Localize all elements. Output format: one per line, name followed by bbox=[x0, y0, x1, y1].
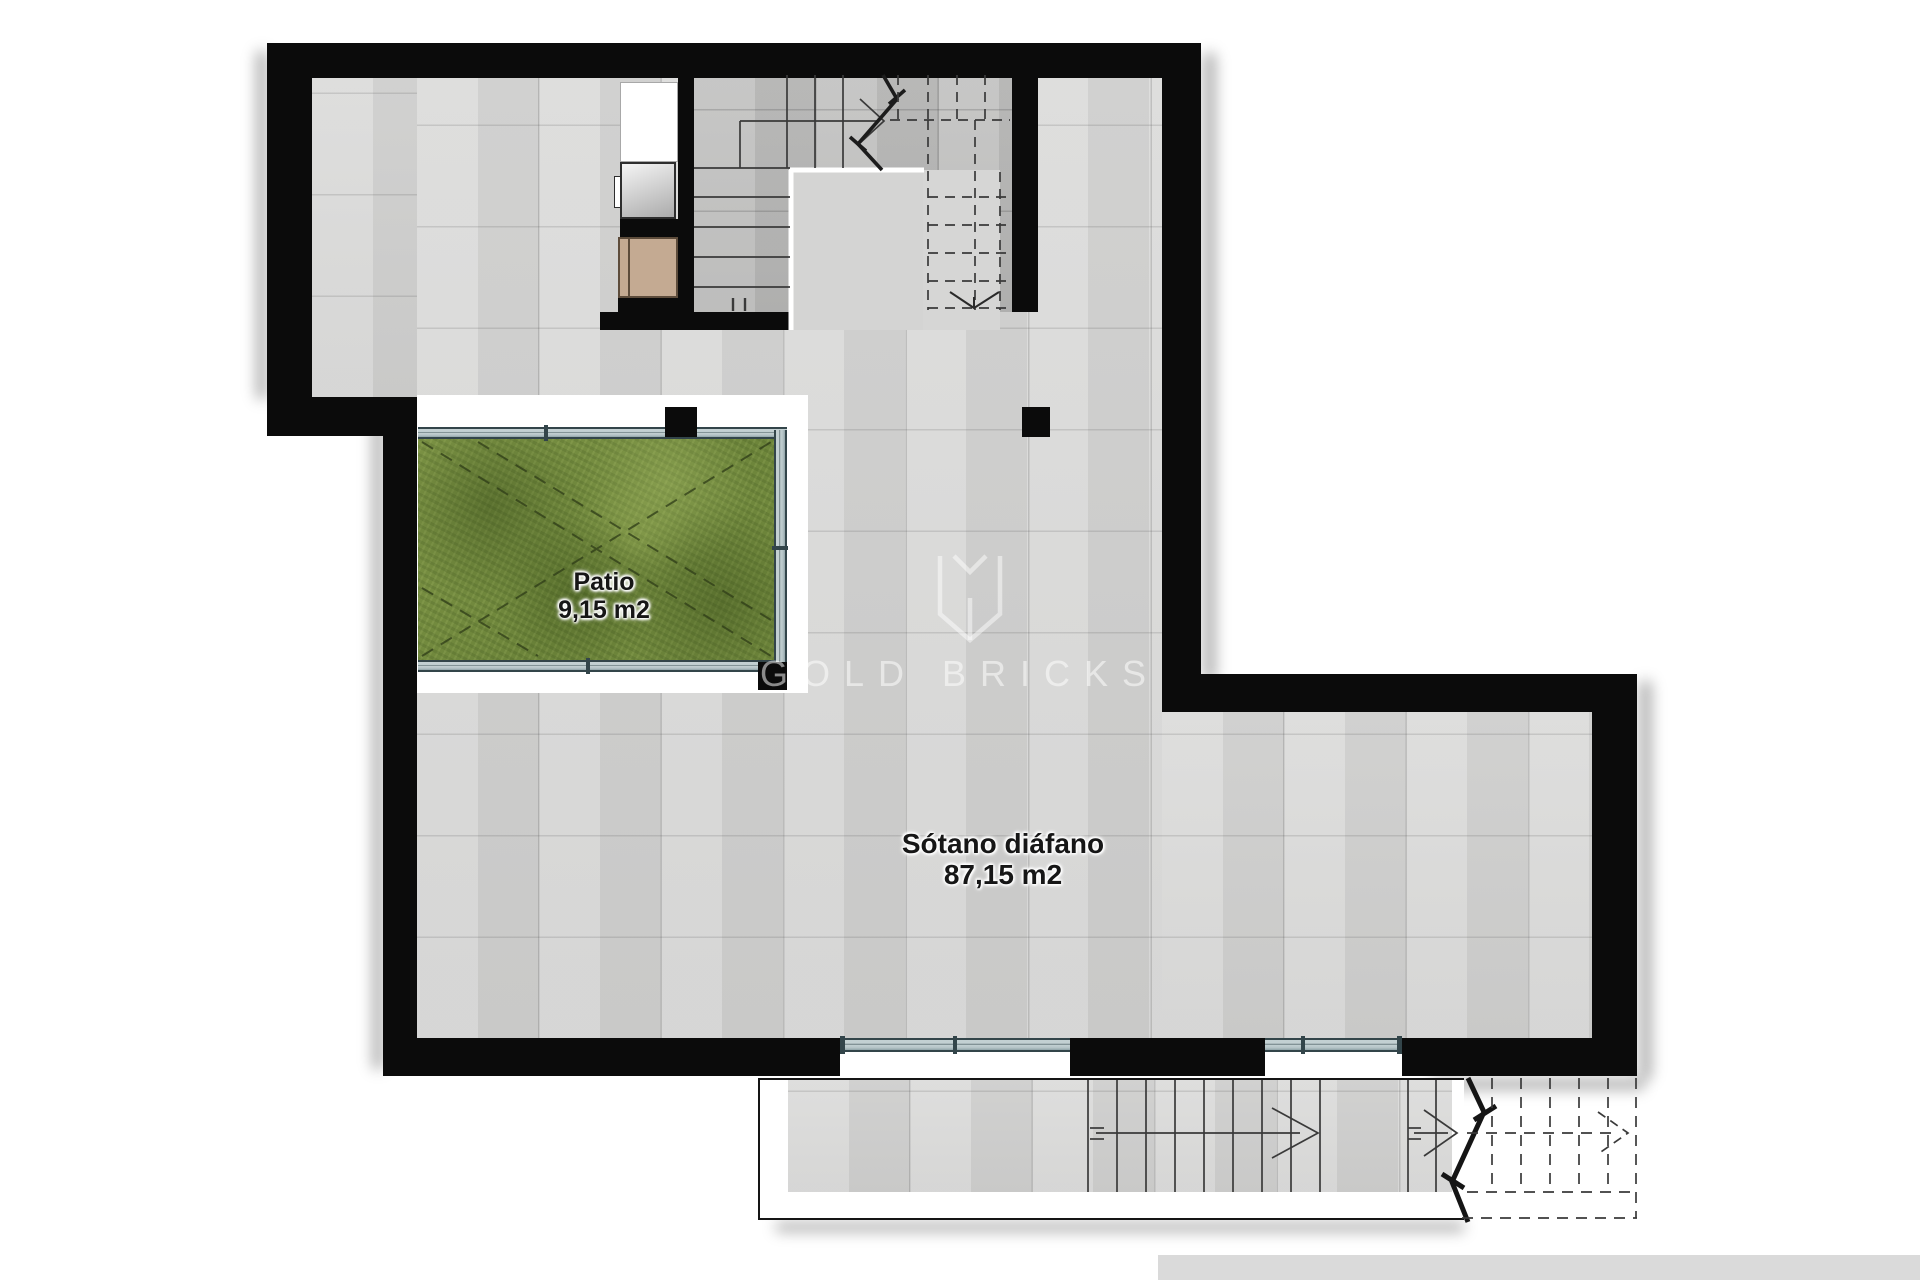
patio-window-right bbox=[774, 430, 787, 670]
bottom-gray-bar bbox=[1158, 1255, 1920, 1280]
window-2-cap-right bbox=[1397, 1036, 1402, 1054]
wall-bottom-seg1 bbox=[383, 1038, 840, 1076]
elevator-shaft bbox=[620, 82, 678, 162]
basement-label: Sótano diáfano 87,15 m2 bbox=[853, 828, 1153, 890]
storage-box bbox=[618, 237, 678, 298]
basement-area: 87,15 m2 bbox=[853, 859, 1153, 890]
wall-bottom-seg3 bbox=[1402, 1038, 1637, 1076]
stair-upper-drawing bbox=[678, 73, 1038, 330]
patio-window-bottom-mullion bbox=[586, 658, 590, 674]
window-2-glazing bbox=[1265, 1038, 1402, 1052]
shadow-right-upper bbox=[1203, 52, 1216, 682]
wall-wing-top bbox=[1201, 674, 1637, 712]
wall-bottom-seg2 bbox=[1070, 1038, 1265, 1076]
elevator-door-panel bbox=[620, 162, 676, 219]
floor-plan-canvas: Patio 9,15 m2 bbox=[0, 0, 1920, 1280]
column-patio-ne bbox=[665, 407, 697, 437]
watermark-text: GOLD BRICKS bbox=[660, 653, 1260, 695]
porch-stair-drawing bbox=[760, 1076, 1640, 1226]
patio-name: Patio bbox=[494, 568, 714, 596]
window-1-mullion bbox=[953, 1036, 957, 1054]
shadow-right-lower bbox=[1639, 680, 1652, 1080]
patio-label: Patio 9,15 m2 bbox=[494, 568, 714, 624]
floor-upper-left-strip bbox=[312, 78, 417, 397]
window-1-cap-left bbox=[840, 1036, 845, 1054]
storage-box-line bbox=[628, 237, 630, 298]
elevator-door-handle bbox=[614, 176, 621, 208]
wall-left-lower bbox=[383, 397, 417, 1076]
wall-right-lower bbox=[1592, 674, 1637, 1076]
patio-area: 9,15 m2 bbox=[494, 596, 714, 624]
gold-bricks-logo-icon bbox=[928, 552, 1012, 648]
basement-name: Sótano diáfano bbox=[853, 828, 1153, 859]
window-2-mullion bbox=[1301, 1036, 1305, 1054]
patio-slope-lines bbox=[418, 438, 775, 660]
floor-right-wing bbox=[1162, 712, 1592, 1038]
column-room bbox=[1022, 407, 1050, 437]
wall-right-upper bbox=[1162, 43, 1201, 712]
wall-left-upper bbox=[267, 43, 312, 397]
